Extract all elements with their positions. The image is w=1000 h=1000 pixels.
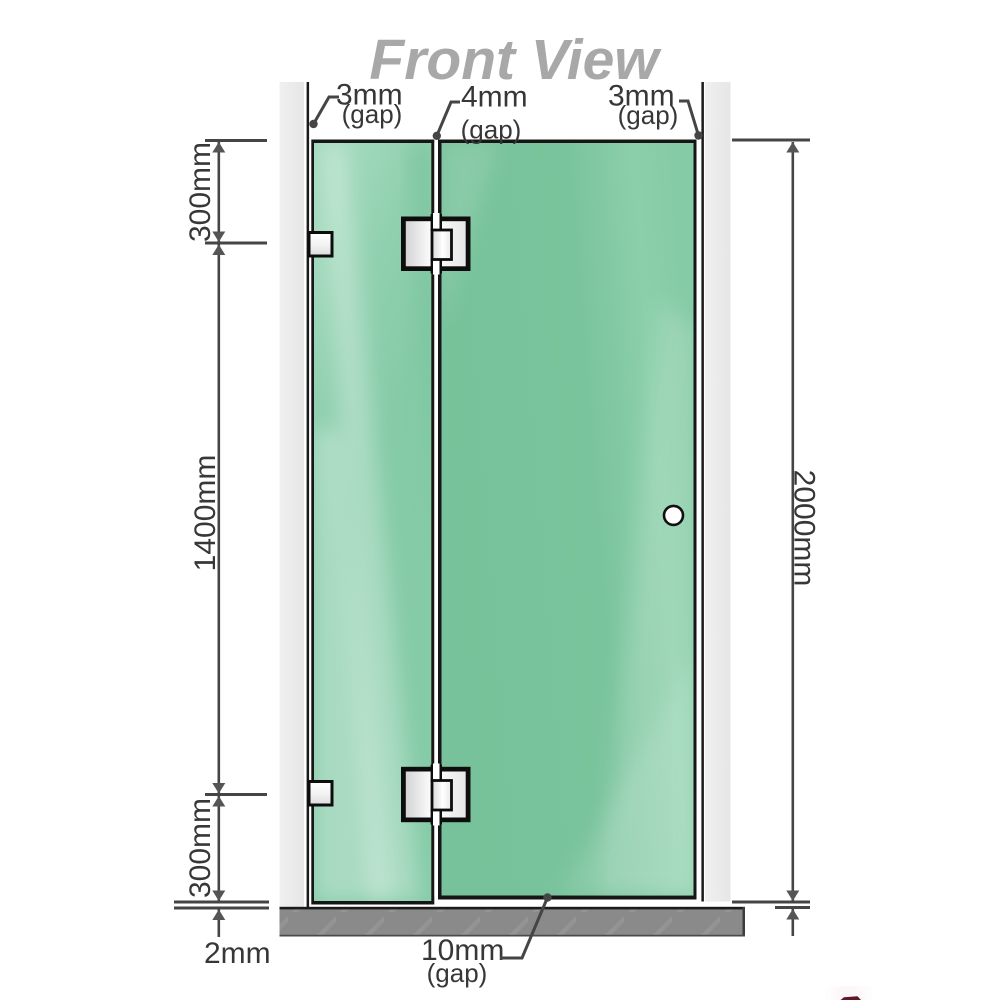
svg-text:2mm: 2mm	[204, 937, 271, 970]
svg-text:300mm: 300mm	[184, 142, 217, 242]
svg-text:(gap): (gap)	[342, 99, 403, 129]
svg-text:4mm: 4mm	[461, 81, 528, 114]
svg-text:300mm: 300mm	[184, 798, 217, 898]
svg-text:(gap): (gap)	[427, 958, 488, 988]
svg-text:2000mm: 2000mm	[788, 470, 821, 587]
svg-text:(gap): (gap)	[618, 100, 679, 130]
svg-text:(gap): (gap)	[461, 115, 522, 145]
svg-text:1400mm: 1400mm	[189, 455, 222, 572]
